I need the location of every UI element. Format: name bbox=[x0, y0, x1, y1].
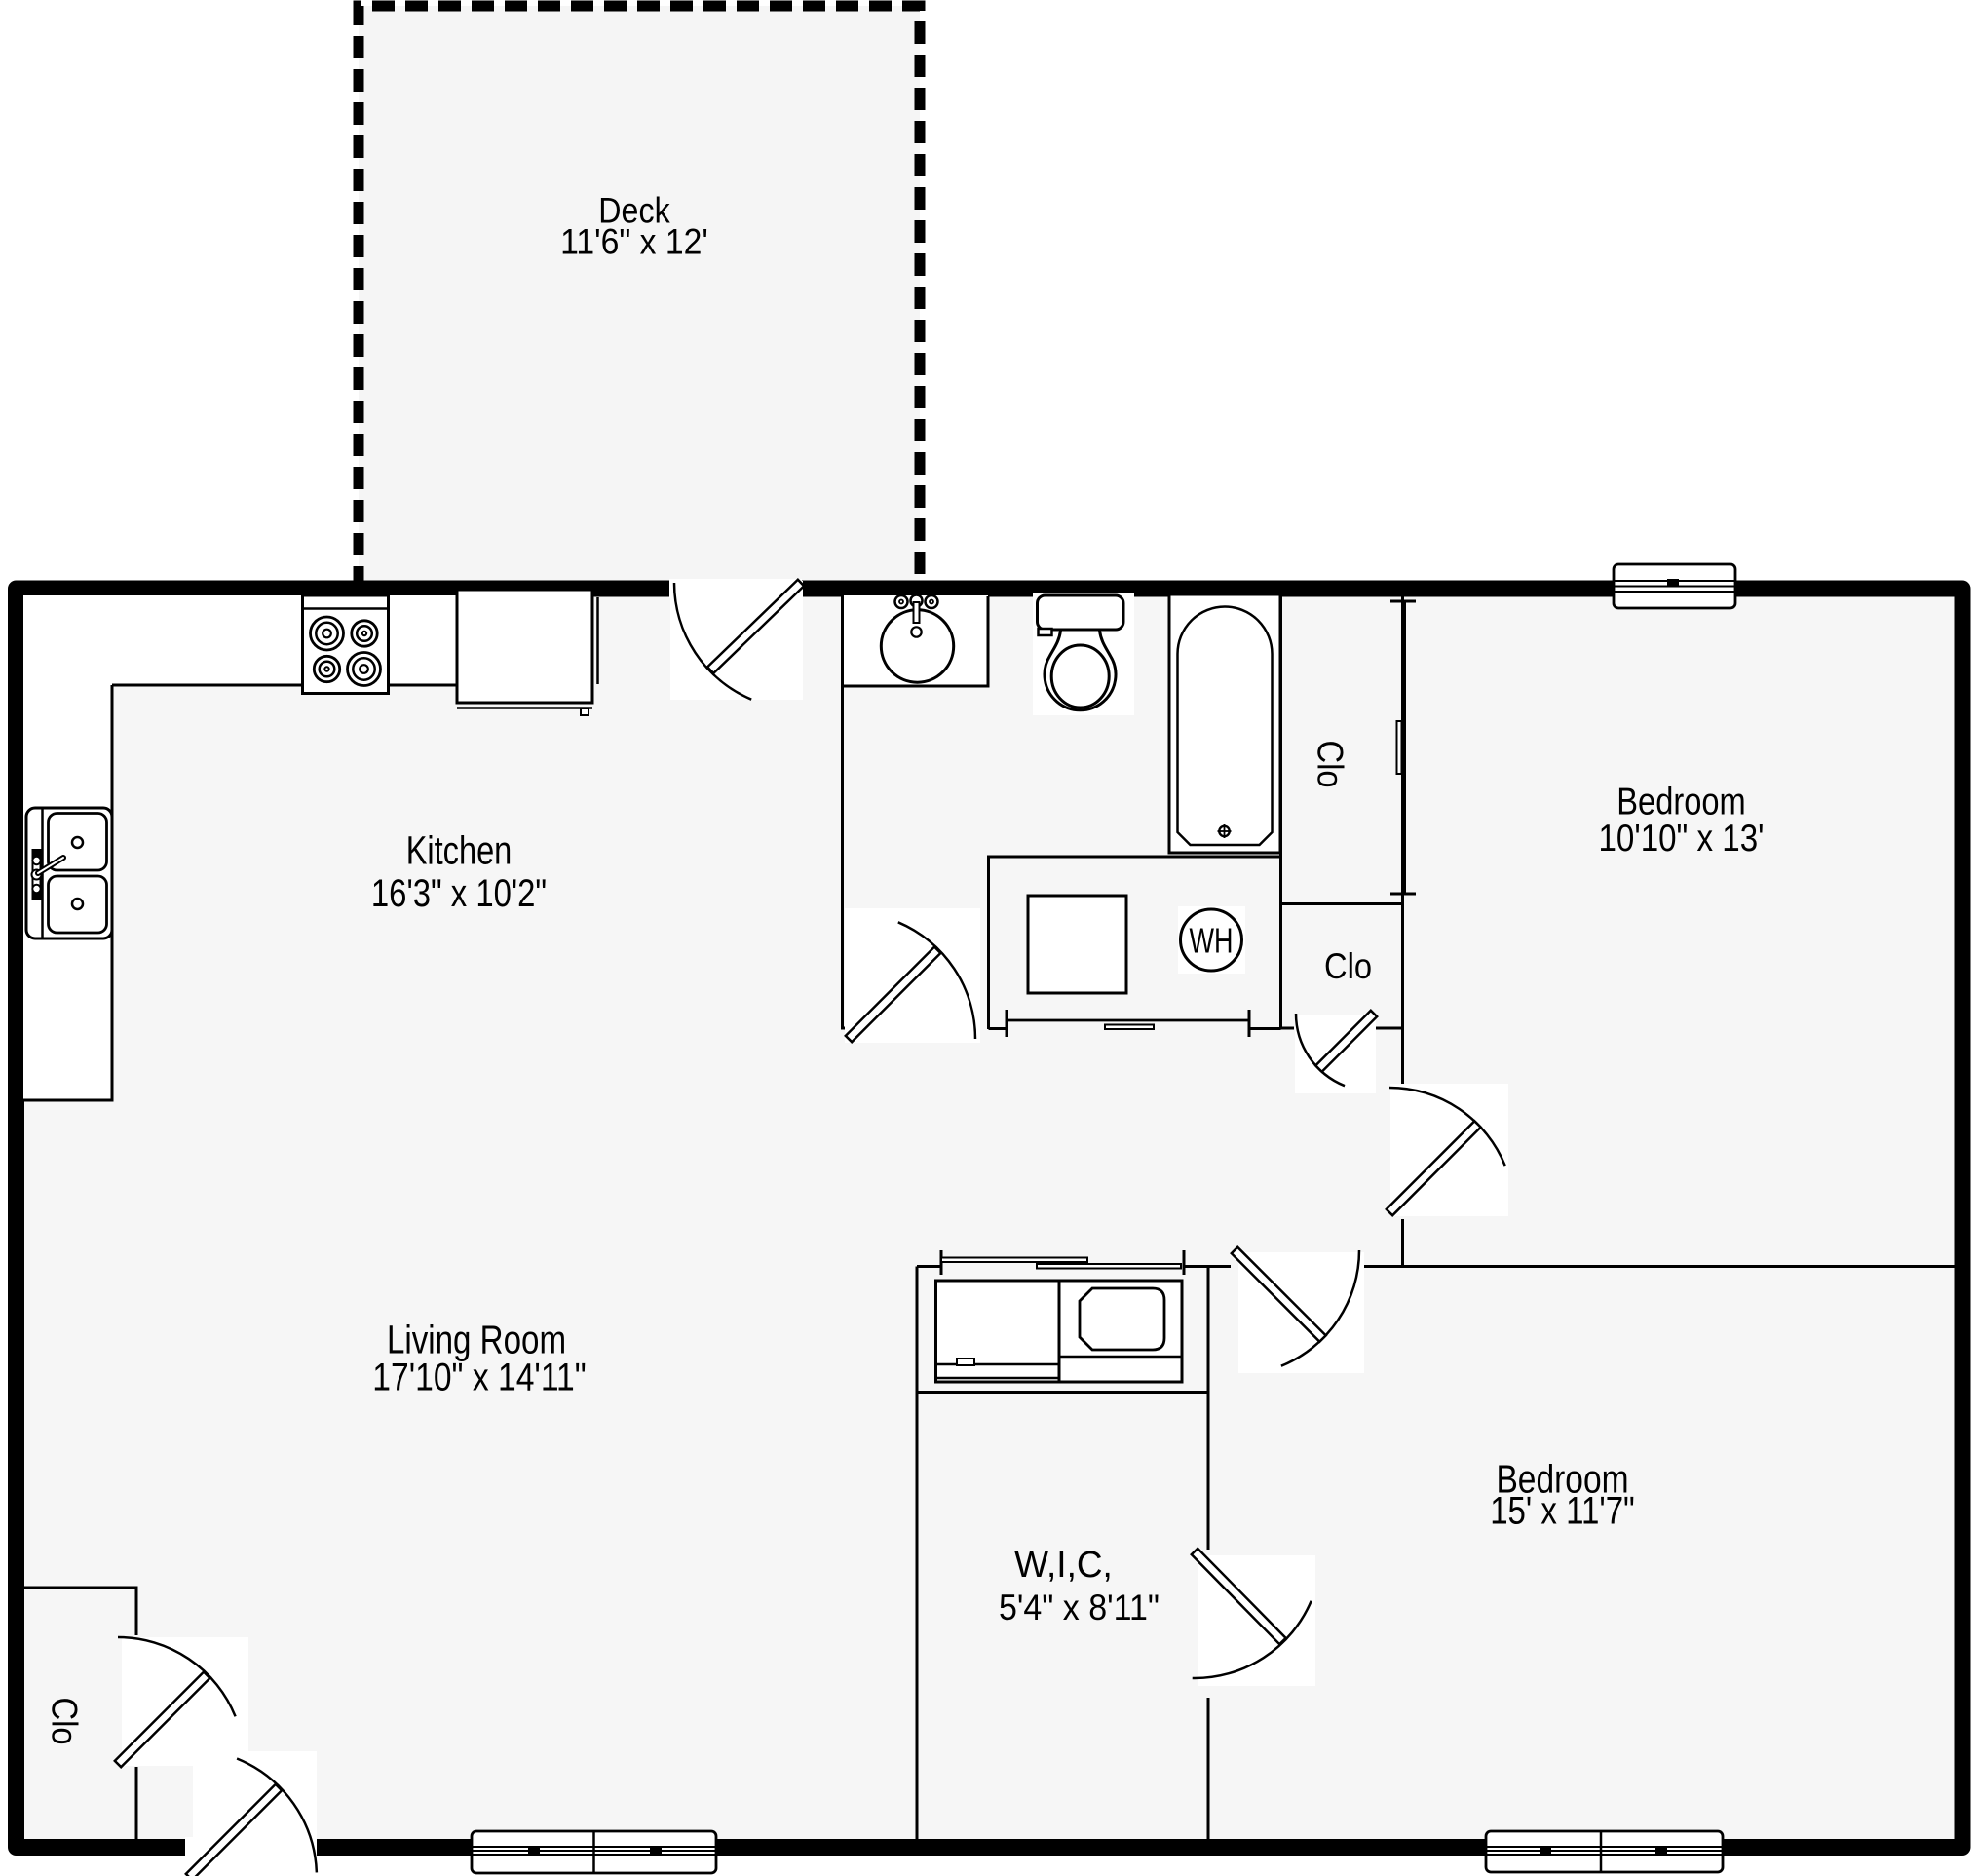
svg-text:10'10" x 13': 10'10" x 13' bbox=[1599, 818, 1765, 860]
svg-text:Clo: Clo bbox=[1324, 946, 1372, 986]
svg-text:WH: WH bbox=[1190, 921, 1234, 961]
svg-text:17'10" x 14'11": 17'10" x 14'11" bbox=[372, 1356, 586, 1398]
svg-text:11'6" x 12': 11'6" x 12' bbox=[560, 222, 708, 262]
svg-text:5'4" x 8'11": 5'4" x 8'11" bbox=[999, 1588, 1160, 1627]
svg-text:16'3" x 10'2": 16'3" x 10'2" bbox=[371, 872, 547, 915]
svg-text:15' x 11'7": 15' x 11'7" bbox=[1490, 1490, 1635, 1533]
svg-text:Clo: Clo bbox=[45, 1698, 85, 1745]
svg-text:W,I,C,: W,I,C, bbox=[1014, 1545, 1113, 1586]
svg-text:Kitchen: Kitchen bbox=[406, 828, 513, 873]
svg-text:Bedroom: Bedroom bbox=[1616, 781, 1745, 823]
svg-text:Clo: Clo bbox=[1311, 741, 1350, 788]
